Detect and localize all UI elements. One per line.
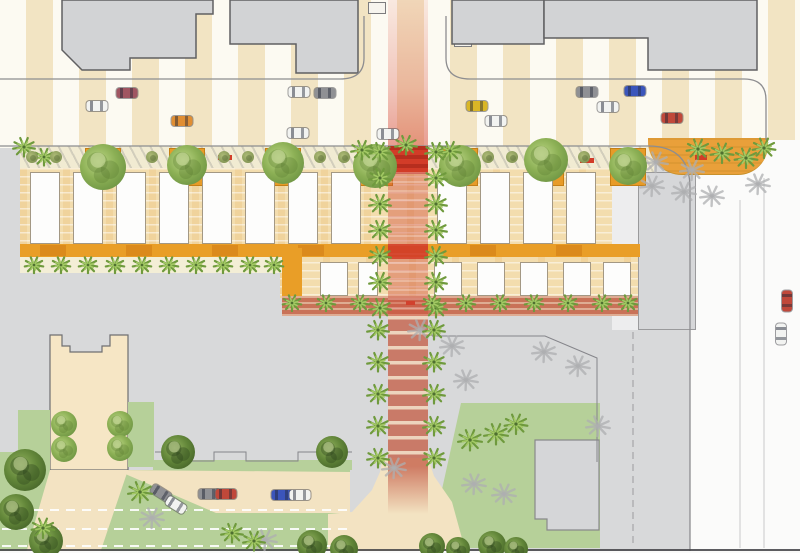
street-shrub — [338, 151, 350, 163]
palm-tree — [711, 144, 734, 163]
palm-tree — [367, 321, 389, 339]
canopy-tree — [609, 147, 647, 185]
palm-tree — [214, 257, 232, 273]
shade-tree — [0, 494, 34, 530]
palm-shadow — [492, 484, 516, 504]
canopy-tree — [524, 138, 568, 182]
shade-tree — [504, 537, 528, 553]
canopy-tree — [262, 142, 304, 184]
palm-tree — [221, 524, 243, 542]
palm-tree — [484, 424, 508, 444]
palm-tree — [32, 519, 55, 538]
palm-shadow — [700, 186, 724, 206]
shade-tree — [161, 435, 195, 469]
palm-tree — [367, 449, 389, 467]
palm-shadow — [140, 508, 164, 528]
street-shrub — [482, 151, 494, 163]
palm-tree — [458, 430, 482, 450]
palm-tree — [351, 295, 369, 311]
palm-tree — [106, 257, 124, 273]
street-shrub — [242, 151, 254, 163]
canopy-tree — [167, 145, 207, 185]
palm-tree — [128, 482, 152, 502]
palm-tree — [79, 257, 97, 273]
palm-tree — [187, 257, 205, 273]
shade-tree — [297, 530, 327, 553]
palm-tree — [395, 136, 417, 154]
palm-tree — [369, 299, 391, 317]
street-shrub — [146, 151, 158, 163]
shade-tree — [316, 436, 348, 468]
palm-tree — [687, 140, 710, 159]
palm-tree — [423, 449, 445, 467]
palm-tree — [753, 139, 776, 158]
palm-tree — [593, 295, 611, 311]
palm-shadow — [672, 182, 696, 202]
shade-tree — [330, 535, 358, 553]
palm-shadow — [566, 356, 590, 376]
canopy-tree — [107, 435, 133, 461]
canopy-tree — [51, 436, 77, 462]
shade-tree — [446, 537, 470, 553]
palm-tree — [525, 295, 543, 311]
street-shrub — [50, 151, 62, 163]
canopy-tree — [80, 144, 126, 190]
palm-tree — [559, 295, 577, 311]
palm-tree — [439, 142, 461, 160]
canopy-tree — [51, 411, 77, 437]
shade-tree — [419, 533, 445, 553]
shade-tree — [4, 449, 46, 491]
palm-tree — [367, 353, 389, 371]
palm-tree — [423, 321, 445, 339]
palm-shadow — [532, 342, 556, 362]
palm-tree — [369, 273, 391, 291]
street-shrub — [506, 151, 518, 163]
palm-tree — [369, 247, 391, 265]
palm-shadow — [746, 174, 770, 194]
palm-shadow — [680, 160, 704, 180]
palm-tree — [423, 353, 445, 371]
palm-tree — [425, 221, 447, 239]
palm-tree — [423, 417, 445, 435]
palm-tree — [160, 257, 178, 273]
shade-tree — [478, 531, 506, 553]
palm-shadow — [586, 416, 610, 436]
palm-tree — [265, 257, 283, 273]
palm-tree — [133, 257, 151, 273]
palm-tree — [457, 295, 475, 311]
palm-tree — [491, 295, 509, 311]
palm-tree — [367, 385, 389, 403]
palm-tree — [735, 149, 758, 168]
palm-shadow — [382, 458, 406, 478]
street-shrub — [578, 151, 590, 163]
site-plan-canvas — [0, 0, 800, 553]
street-shrub — [314, 151, 326, 163]
palm-tree — [425, 195, 447, 213]
palm-shadow — [462, 474, 486, 494]
street-shrub — [26, 151, 38, 163]
palm-tree — [425, 273, 447, 291]
palm-tree — [619, 295, 637, 311]
palm-tree — [425, 247, 447, 265]
palm-tree — [369, 195, 391, 213]
palm-tree — [25, 257, 43, 273]
palm-tree — [423, 385, 445, 403]
street-shrub — [218, 151, 230, 163]
palm-shadow — [644, 152, 668, 172]
palm-shadow — [454, 370, 478, 390]
flora-layer — [0, 0, 800, 553]
palm-shadow — [440, 336, 464, 356]
palm-tree — [423, 295, 441, 311]
palm-tree — [52, 257, 70, 273]
palm-tree — [505, 415, 528, 434]
palm-tree — [369, 221, 391, 239]
palm-tree — [317, 295, 335, 311]
palm-tree — [367, 417, 389, 435]
palm-shadow — [640, 176, 664, 196]
canopy-tree — [107, 411, 133, 437]
palm-tree — [241, 257, 259, 273]
palm-tree — [351, 141, 373, 159]
palm-tree — [283, 295, 301, 311]
